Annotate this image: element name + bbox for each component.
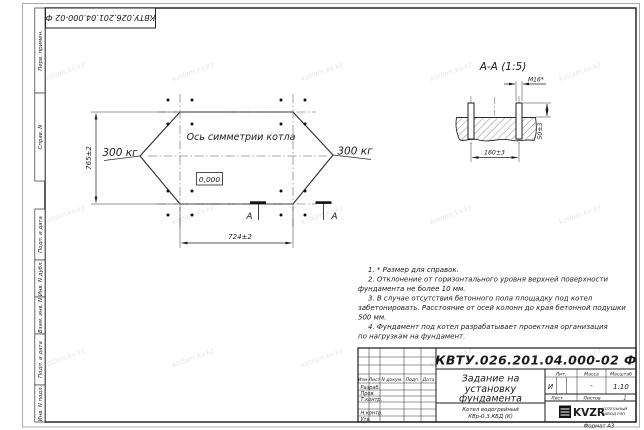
logo-caption-line: ЗАВОД РЭП [602, 411, 625, 416]
anchor-bolt-dot [280, 214, 283, 217]
note-line: забетонировать. Расстояние от осей колон… [358, 304, 626, 312]
foundation-plan: Ось симметрии котла 300 кг 300 кг 0,000 … [85, 94, 373, 248]
header-doc: N докум. [381, 377, 402, 383]
section-detail: А-А (1:5) М16* 50±3 [456, 61, 551, 162]
margin-label: Подп. и дата [38, 341, 44, 378]
anchor-bolt-left [468, 103, 474, 139]
dimension-spacing: 160±3 [471, 142, 519, 162]
dim-spacing-text: 160±3 [484, 150, 505, 157]
dim-height-text: 765±2 [85, 146, 93, 170]
anchor-bolt-dot [191, 214, 194, 217]
margin-label: Перв. примен. [38, 30, 44, 70]
format-label: Формат А3 [584, 424, 615, 430]
value-sheets-count: 1 [623, 395, 626, 401]
drawing-sheet: kotlam.kv.kz kotlam.kv.kz kotlam.kv.kz k… [0, 0, 644, 430]
row-tkontr: Т.контр. [361, 397, 383, 403]
header-list: Лист [368, 377, 381, 383]
bolt-label: М16* [528, 77, 544, 84]
dim-width-text: 724±2 [228, 233, 252, 241]
value-scale: 1:10 [613, 383, 629, 391]
margin-label: Справ. N [38, 125, 44, 150]
anchor-bolt-dot [167, 214, 170, 217]
notes: 1. * Размер для справок. 2. Отклонение о… [358, 266, 626, 341]
section-title: А-А (1:5) [479, 61, 527, 73]
dimension-bolt: М16* [504, 77, 546, 102]
logo-name: KVZR [573, 407, 605, 419]
margin-label: Подп. и дата [38, 216, 44, 253]
row-razrab: Разраб. [361, 385, 381, 391]
note-line: 1. * Размер для справок. [368, 266, 459, 274]
header-scale: Масштаб [610, 371, 632, 377]
top-stamp: КВТУ.026.201.04.000-02 Ф [46, 8, 156, 28]
anchor-bolt-dot [191, 190, 194, 193]
load-label-left: 300 кг [102, 147, 138, 159]
value-lit: И [548, 383, 554, 391]
title-block: КВТУ.026.201.04.000-02 Ф Задание на уста… [358, 348, 637, 430]
dimension-width: 724±2 [180, 207, 293, 248]
note-line: 500 мм. [358, 314, 386, 322]
centerlines [148, 94, 327, 229]
object-line: Котел водогрейный [462, 407, 519, 413]
note-line: 4. Фундамент под котел разрабатывает про… [368, 323, 608, 331]
doc-title-line: Задание на [462, 374, 520, 385]
dim-protrusion-text: 50±3 [537, 122, 544, 139]
stamp-doc-number: КВТУ.026.201.04.000-02 Ф [46, 13, 156, 22]
anchor-bolt-dot [280, 190, 283, 193]
drawing-canvas: КВТУ.026.201.04.000-02 Ф Перв. примен. С… [0, 0, 644, 430]
anchor-bolt-dot [304, 190, 307, 193]
anchor-bolt-dot [304, 214, 307, 217]
margin-label: Инв. N дубл. [38, 261, 44, 296]
anchor-bolt-dot [280, 99, 283, 102]
anchor-bolt-dot [304, 99, 307, 102]
anchor-bolt-right [516, 103, 522, 139]
anchor-bolt-dot [280, 123, 283, 126]
anchor-bolt-dot [191, 99, 194, 102]
header-sheets: Листов [582, 395, 600, 401]
header-mass: Масса [584, 371, 599, 377]
anchor-bolts [167, 99, 307, 217]
anchor-bolt-dot [167, 123, 170, 126]
header-podp: Подп. [406, 377, 420, 383]
doc-number: КВТУ.026.201.04.000-02 Ф [435, 353, 637, 368]
value-mass: - [590, 382, 593, 390]
margin-label: Взам. инв. N [38, 298, 44, 333]
company-logo: KVZR КОТЕЛЬНЫЙ ЗАВОД РЭП [559, 406, 627, 420]
section-marks [250, 203, 332, 220]
anchor-bolt-dot [304, 123, 307, 126]
section-letter-left: А [245, 212, 252, 222]
note-line: 2. Отклонение от горизонтального уровня … [368, 276, 608, 284]
header-lit: Лит. [555, 371, 567, 377]
anchor-bolt-dot [191, 123, 194, 126]
row-nkontr: Н.контр. [361, 411, 383, 417]
anchor-bolt-dot [167, 99, 170, 102]
header-izm: Изм. [358, 377, 369, 383]
note-line: по нагрузкам на фундамент. [358, 333, 465, 341]
margin-label: Инв. N подл. [38, 386, 44, 422]
anchor-bolt-dot [167, 190, 170, 193]
header-data: Дата [422, 377, 435, 383]
doc-title-line: фундамента [459, 394, 522, 405]
elevation-value: 0,000 [199, 175, 220, 184]
note-line: фундамента не более 10 мм. [358, 285, 466, 293]
row-utv: Утв. [361, 417, 372, 423]
note-line: 3. В случае отсутствия бетонного пола пл… [368, 295, 593, 303]
object-line: КВр-0,3 КБД (К) [468, 414, 513, 420]
axis-label: Ось симметрии котла [187, 132, 296, 143]
load-label-right: 300 кг [337, 146, 373, 158]
section-letter-right: А [330, 212, 337, 222]
header-sheet: Лист [550, 395, 563, 401]
row-prov: Пров. [361, 391, 376, 397]
